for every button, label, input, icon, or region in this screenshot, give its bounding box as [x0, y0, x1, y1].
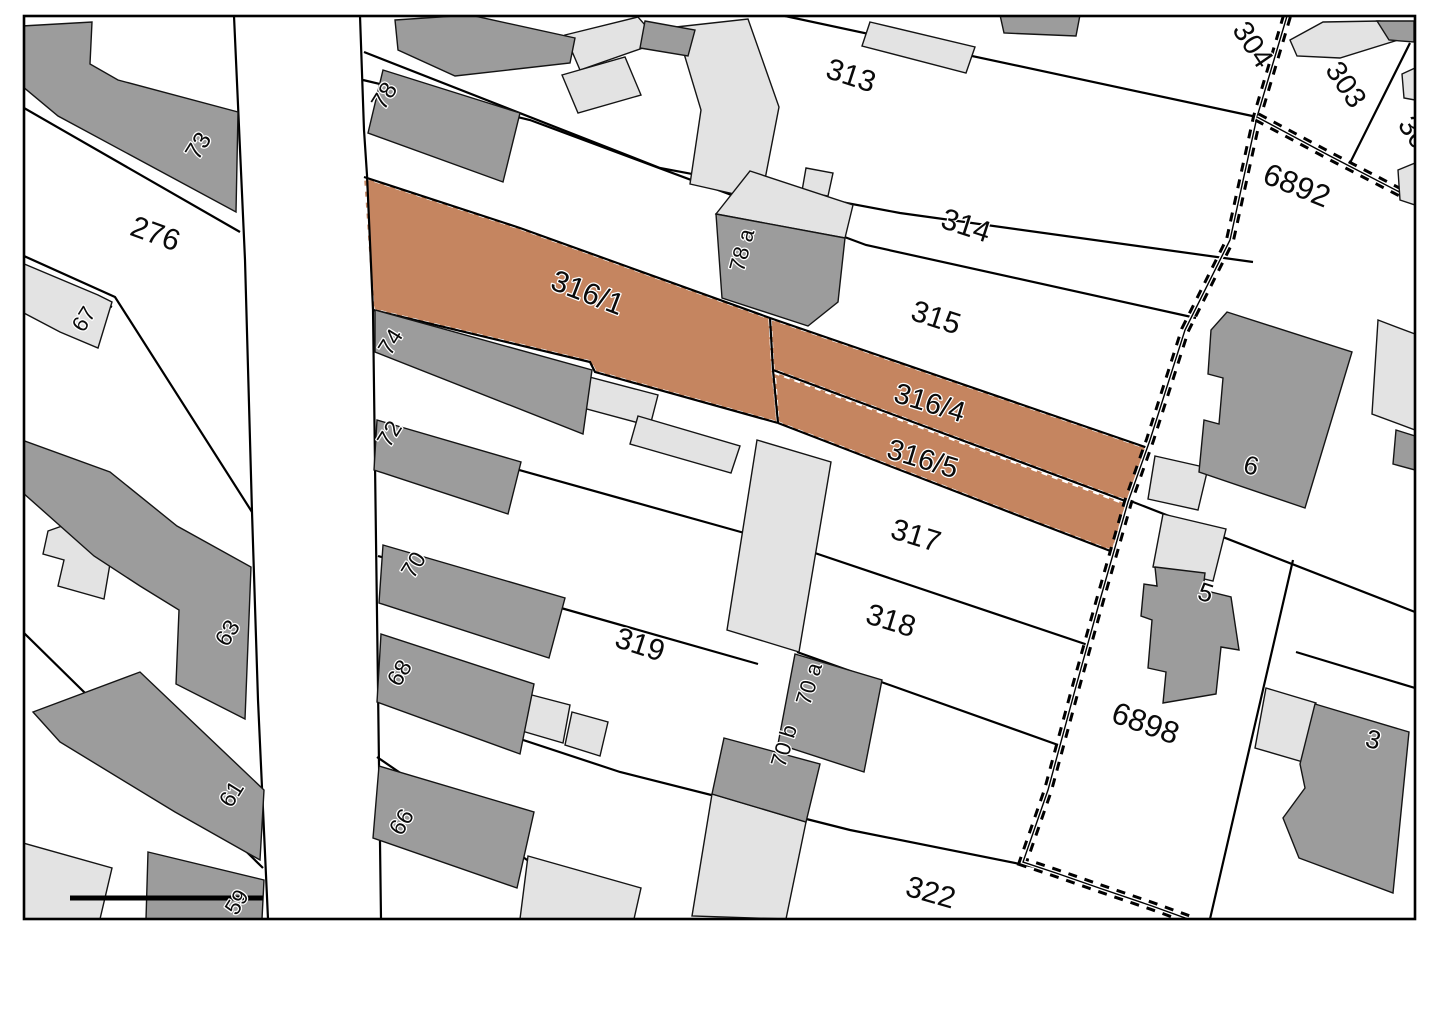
- building-light-mid-1: [630, 416, 740, 473]
- building-light-right-sliver-b: [1372, 320, 1415, 430]
- building-light-near-boundary-1: [1148, 456, 1208, 510]
- building-light-68-b: [565, 712, 608, 756]
- building-light-right-sliver-a: [1402, 68, 1415, 100]
- label-322: 322: [902, 870, 959, 916]
- building-68: [377, 634, 534, 754]
- building-light-bottom-left: [520, 856, 641, 919]
- cadastral-map-page: 73782766731331431578 a316/17472316/4316/…: [0, 0, 1440, 1018]
- label-6898: 6898: [1107, 695, 1184, 751]
- label-317: 317: [887, 513, 945, 559]
- building-light-313-block: [676, 19, 779, 200]
- building-light-top-2: [562, 57, 641, 113]
- label-30: 30: [1391, 111, 1436, 156]
- building-73: [22, 22, 238, 212]
- label-319: 319: [611, 622, 669, 669]
- building-dark-top-sliver: [1000, 15, 1080, 36]
- label-276: 276: [126, 210, 184, 258]
- label-315: 315: [907, 295, 965, 342]
- label-313: 313: [822, 53, 880, 100]
- building-light-59-side: [23, 843, 112, 919]
- building-dark-right-sliver: [1393, 430, 1415, 470]
- map-canvas[interactable]: 73782766731331431578 a316/17472316/4316/…: [0, 0, 1440, 1018]
- building-dark-top-band: [395, 15, 575, 76]
- label-303: 303: [1319, 56, 1373, 114]
- building-light-column: [727, 440, 831, 652]
- building-6: [1199, 312, 1352, 508]
- building-light-top-3: [862, 22, 975, 73]
- building-light-right-sliver-c: [1398, 163, 1415, 205]
- building-5: [1141, 567, 1239, 703]
- label-314: 314: [937, 203, 995, 250]
- label-6892: 6892: [1258, 156, 1335, 214]
- label-318: 318: [862, 598, 920, 644]
